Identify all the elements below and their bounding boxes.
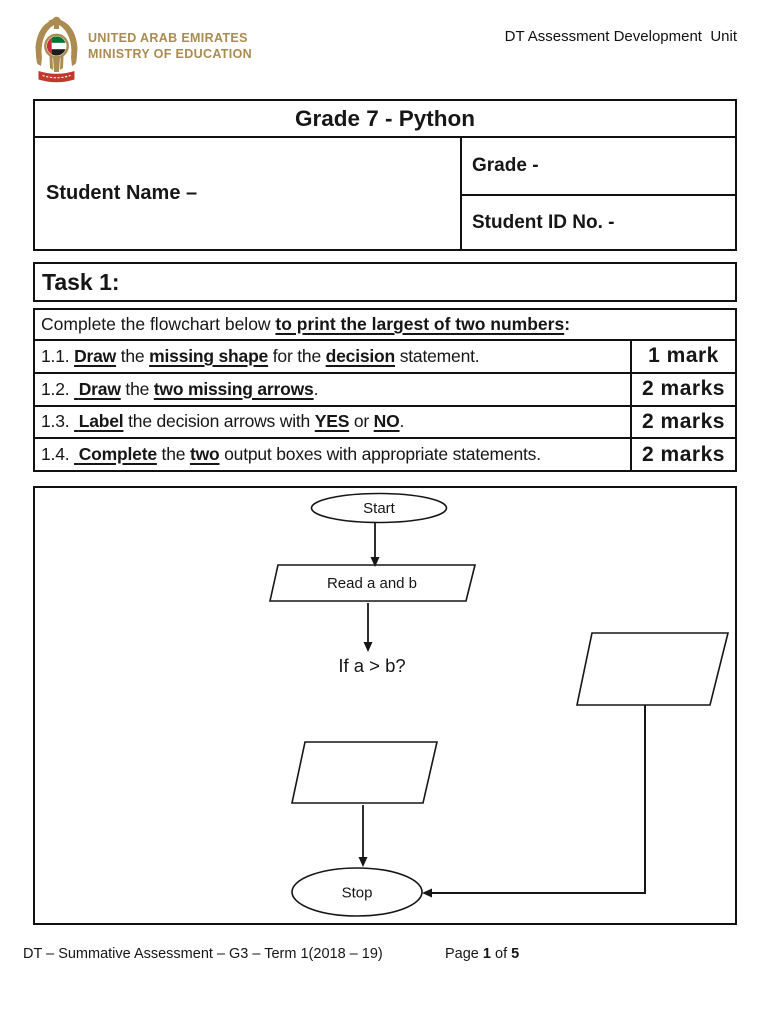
task-row-marks: 2 marks [630,374,735,405]
task-heading: Task 1: [42,269,120,296]
task-row-description: 1.3. Label the decision arrows with YES … [35,407,630,438]
task-row-description: 1.1. Draw the missing shape for the deci… [35,341,630,372]
student-name-label: Student Name – [35,138,462,249]
student-info-table: Grade 7 - Python Student Name – Grade - … [33,99,737,251]
uae-moe-emblem-icon [33,14,80,88]
task-row-marks: 2 marks [630,439,735,470]
stop-label: Stop [342,885,373,902]
task-row-1-4: 1.4. Complete the two output boxes with … [35,437,735,470]
ministry-name-block: UNITED ARAB EMIRATES MINISTRY OF EDUCATI… [88,30,252,62]
task-row-marks: 1 mark [630,341,735,372]
footer-document-id: DT – Summative Assessment – G3 – Term 1(… [23,946,383,962]
ministry-line1: UNITED ARAB EMIRATES [88,30,252,46]
output-parallelogram-left [292,742,437,803]
worksheet-title: Grade 7 - Python [35,101,735,138]
task-row-1-2: 1.2. Draw the two missing arrows. 2 mark… [35,372,735,405]
read-label: Read a and b [327,575,417,592]
ribbon [39,71,75,82]
task-row-description: 1.4. Complete the two output boxes with … [35,439,630,470]
uae-flag-disc [45,35,67,57]
output-parallelogram-right [577,633,728,705]
connector-right-to-stop [431,705,645,893]
grade-label: Grade - [462,138,735,196]
flowchart-box: Start Read a and b If a > b? Stop [33,486,737,925]
worksheet-page: UNITED ARAB EMIRATES MINISTRY OF EDUCATI… [0,0,768,1024]
task-row-marks: 2 marks [630,407,735,438]
flowchart-diagram: Start Read a and b If a > b? Stop [35,488,735,923]
task-instruction-table: Complete the flowchart below to print th… [33,308,737,472]
ministry-line2: MINISTRY OF EDUCATION [88,46,252,62]
footer-page-number: Page 1 of 5 [445,946,519,962]
task-row-1-1: 1.1. Draw the missing shape for the deci… [35,341,735,372]
start-label: Start [363,500,396,517]
unit-title: DT Assessment Development Unit [505,28,737,45]
student-id-label: Student ID No. - [462,196,735,249]
task-heading-box: Task 1: [33,262,737,302]
task-intro: Complete the flowchart below to print th… [35,310,735,341]
decision-label: If a > b? [338,655,405,676]
task-row-description: 1.2. Draw the two missing arrows. [35,374,630,405]
task-row-1-3: 1.3. Label the decision arrows with YES … [35,405,735,438]
